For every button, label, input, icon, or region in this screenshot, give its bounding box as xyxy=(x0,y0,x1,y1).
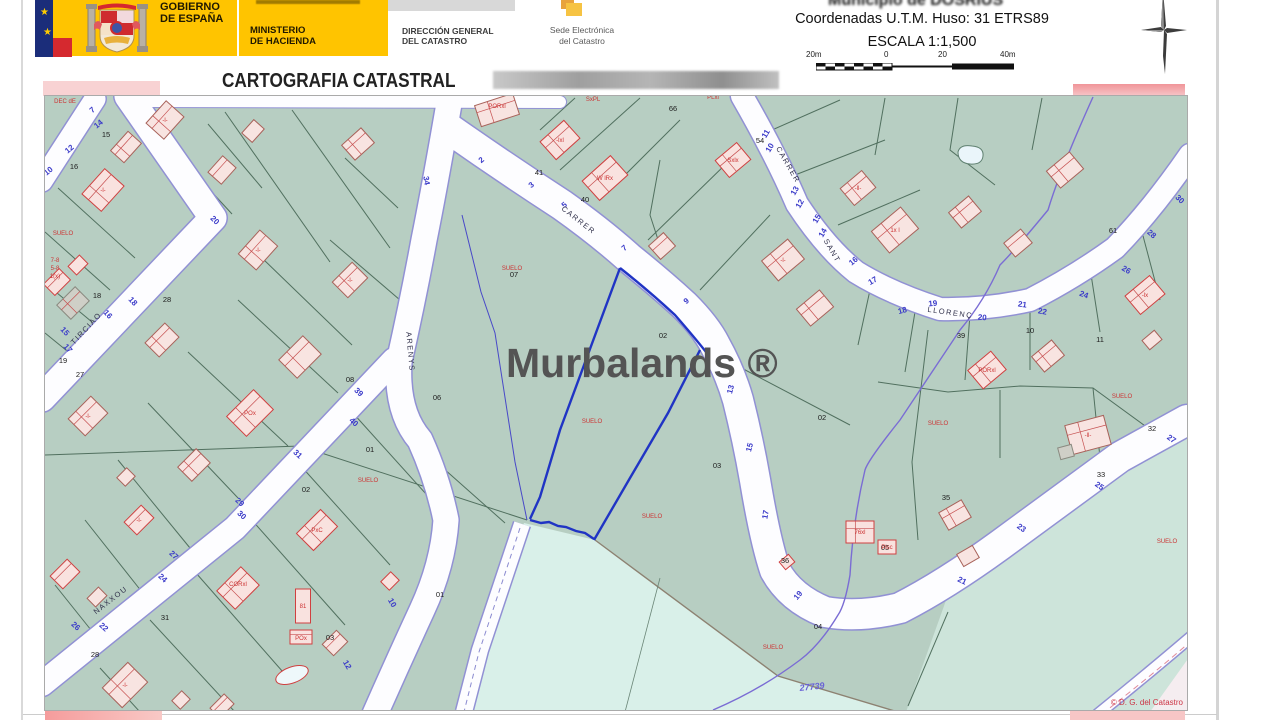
svg-text:-lxl: -lxl xyxy=(556,138,564,144)
svg-text:SUELO: SUELO xyxy=(1112,394,1133,400)
svg-text:35: 35 xyxy=(942,493,950,502)
svg-text:-l-: -l- xyxy=(136,518,141,524)
svg-text:04: 04 xyxy=(814,622,822,631)
svg-text:61: 61 xyxy=(1109,226,1117,235)
svg-text:SUELO: SUELO xyxy=(763,645,784,651)
svg-text:1x l: 1x l xyxy=(890,228,899,234)
svg-text:7-8: 7-8 xyxy=(51,258,60,264)
svg-text:PLxl: PLxl xyxy=(707,96,719,101)
svg-text:33: 33 xyxy=(1097,470,1105,479)
svg-text:66: 66 xyxy=(669,104,677,113)
svg-text:SUELO: SUELO xyxy=(53,231,74,237)
svg-text:31: 31 xyxy=(161,613,169,622)
svg-text:76xl: 76xl xyxy=(854,530,865,536)
svg-text:28: 28 xyxy=(91,650,99,659)
svg-text:PORxl: PORxl xyxy=(488,104,505,110)
svg-text:Pisc: Pisc xyxy=(881,545,892,551)
svg-text:32: 32 xyxy=(1148,424,1156,433)
svg-text:-l-: -l- xyxy=(100,188,105,194)
svg-text:-l-: -l- xyxy=(162,118,167,124)
svg-text:SxPL: SxPL xyxy=(586,97,601,103)
svg-text:20: 20 xyxy=(977,313,987,323)
svg-text:-l-: -l- xyxy=(255,248,260,254)
svg-text:02: 02 xyxy=(659,331,667,340)
svg-text:41: 41 xyxy=(535,168,543,177)
svg-text:28: 28 xyxy=(163,295,171,304)
svg-text:01: 01 xyxy=(366,445,374,454)
svg-text:15: 15 xyxy=(102,130,110,139)
svg-text:01: 01 xyxy=(436,590,444,599)
svg-text:81: 81 xyxy=(300,604,307,610)
svg-text:-l-: -l- xyxy=(85,414,90,420)
svg-text:SUELO: SUELO xyxy=(582,419,603,425)
svg-text:PORxl: PORxl xyxy=(978,368,995,374)
svg-text:W lRx: W lRx xyxy=(597,176,613,182)
svg-text:POx: POx xyxy=(244,411,256,417)
svg-text:SUELO: SUELO xyxy=(502,266,523,272)
svg-text:-l-: -l- xyxy=(122,683,127,689)
svg-text:CORxl: CORxl xyxy=(229,582,247,588)
svg-text:-ll-: -ll- xyxy=(855,186,862,192)
svg-text:08: 08 xyxy=(346,375,354,384)
svg-text:19: 19 xyxy=(59,356,67,365)
svg-text:1(x): 1(x) xyxy=(50,274,60,280)
svg-text:10: 10 xyxy=(1026,326,1034,335)
svg-text:PxC: PxC xyxy=(311,528,323,534)
svg-text:© D. G. del Catastro: © D. G. del Catastro xyxy=(1111,698,1184,707)
svg-text:06: 06 xyxy=(433,393,441,402)
svg-text:03: 03 xyxy=(326,633,334,642)
svg-text:-lx: -lx xyxy=(1142,293,1148,299)
svg-text:54: 54 xyxy=(756,136,764,145)
svg-text:02: 02 xyxy=(818,413,826,422)
svg-text:Murbalands ®: Murbalands ® xyxy=(506,340,778,386)
svg-text:11: 11 xyxy=(1096,335,1104,344)
svg-text:-l-: -l- xyxy=(347,278,352,284)
svg-text:DEC dE: DEC dE xyxy=(54,99,76,105)
svg-text:Sxlx: Sxlx xyxy=(727,158,738,164)
svg-text:02: 02 xyxy=(302,485,310,494)
svg-text:SUELO: SUELO xyxy=(642,514,663,520)
svg-text:SUELO: SUELO xyxy=(928,421,949,427)
svg-text:5-8: 5-8 xyxy=(51,266,60,272)
svg-text:18: 18 xyxy=(93,291,101,300)
svg-text:39: 39 xyxy=(957,331,965,340)
svg-text:16: 16 xyxy=(70,162,78,171)
svg-text:03: 03 xyxy=(713,461,721,470)
svg-text:21: 21 xyxy=(1017,299,1028,309)
svg-text:SUELO: SUELO xyxy=(358,478,379,484)
svg-text:36: 36 xyxy=(781,556,789,565)
svg-text:SUELO: SUELO xyxy=(1157,539,1178,545)
svg-text:27: 27 xyxy=(76,370,84,379)
svg-text:-l-: -l- xyxy=(780,258,785,264)
svg-text:POx: POx xyxy=(295,636,307,642)
svg-text:40: 40 xyxy=(581,195,589,204)
svg-text:-ll-: -ll- xyxy=(1085,433,1092,439)
